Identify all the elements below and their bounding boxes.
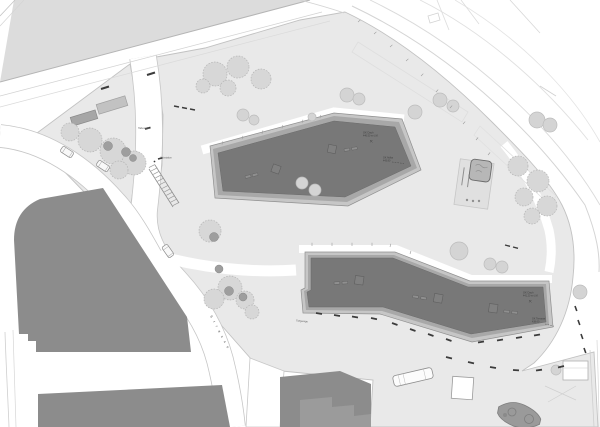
roof-skylight-lower-3 [488,303,498,313]
tree-canopy [227,56,249,78]
roof-label-lower2-line2: 438.60 [532,320,540,323]
tree-dark [215,265,223,273]
tree-canopy [78,128,102,152]
tree-dark [130,155,137,162]
roof-label-lower-line2: 441.20 m ü.M. [523,295,539,298]
property-line-2 [461,0,479,24]
tree-canopy [61,123,79,141]
roof-label-upper-line2: 446.50 m ü.M. [363,135,379,138]
tree-new [484,258,496,270]
roof-skylight-lower-2 [433,293,443,303]
roof-skylight-lower-1 [354,275,364,285]
tree-new [543,118,557,132]
tree-new [353,93,365,105]
stop-label: Haltestelle [138,127,150,130]
tree-dark [239,293,247,301]
site-plan-page: OK Dach446.50 m ü.M.OK Attika443.80OK Da… [0,0,600,427]
tree-new [450,242,468,260]
sand-pit [469,159,493,183]
tree-canopy [537,196,557,216]
pavilion-outline-2 [563,361,588,380]
tree-dark [122,148,131,157]
pavilion-outline-1 [451,376,473,399]
tree-new [496,261,508,273]
tree-new [433,93,447,107]
tree-canopy [527,170,549,192]
tree-new [296,177,308,189]
site-plan-canvas: OK Dach446.50 m ü.M.OK Attika443.80OK Da… [0,0,600,427]
tree-dark [210,233,219,242]
property-line-3 [510,0,540,33]
roof-skylight-upper-2 [327,144,336,153]
bike-label: Velostation [160,157,172,160]
tree-canopy [251,69,271,89]
tree-new [237,109,249,121]
tree-new [447,100,459,112]
left-edge-road-line-1 [5,332,9,427]
existing-building-south [38,385,230,427]
tree-canopy [196,79,210,93]
tree-new [408,105,422,119]
tree-canopy [508,156,528,176]
tree-canopy [204,289,224,309]
tree-canopy [245,305,259,319]
tree-new [308,113,316,121]
left-edge-road-line-2 [13,330,16,427]
play-pad-dot [466,199,468,201]
roof-label-upper2-line2: 443.80 [383,159,391,162]
tree-new [340,88,354,102]
tree-dark [104,142,113,151]
play-structure-dot [503,413,507,417]
tree-canopy [524,208,540,224]
tree-new [309,184,321,196]
tree-dark [225,287,234,296]
highway-curve-3 [300,0,344,13]
tree-new [573,285,587,299]
tree-canopy [515,188,533,206]
tree-canopy [110,161,128,179]
parking-tick-row-east-edge [575,306,586,353]
road-small-box [428,13,440,23]
tree-canopy [220,80,236,96]
play-pad-dot [472,200,474,202]
play-pad-dot [478,200,480,202]
tree-new [249,115,259,125]
tree-new [529,112,545,128]
bench-dot [154,161,156,163]
